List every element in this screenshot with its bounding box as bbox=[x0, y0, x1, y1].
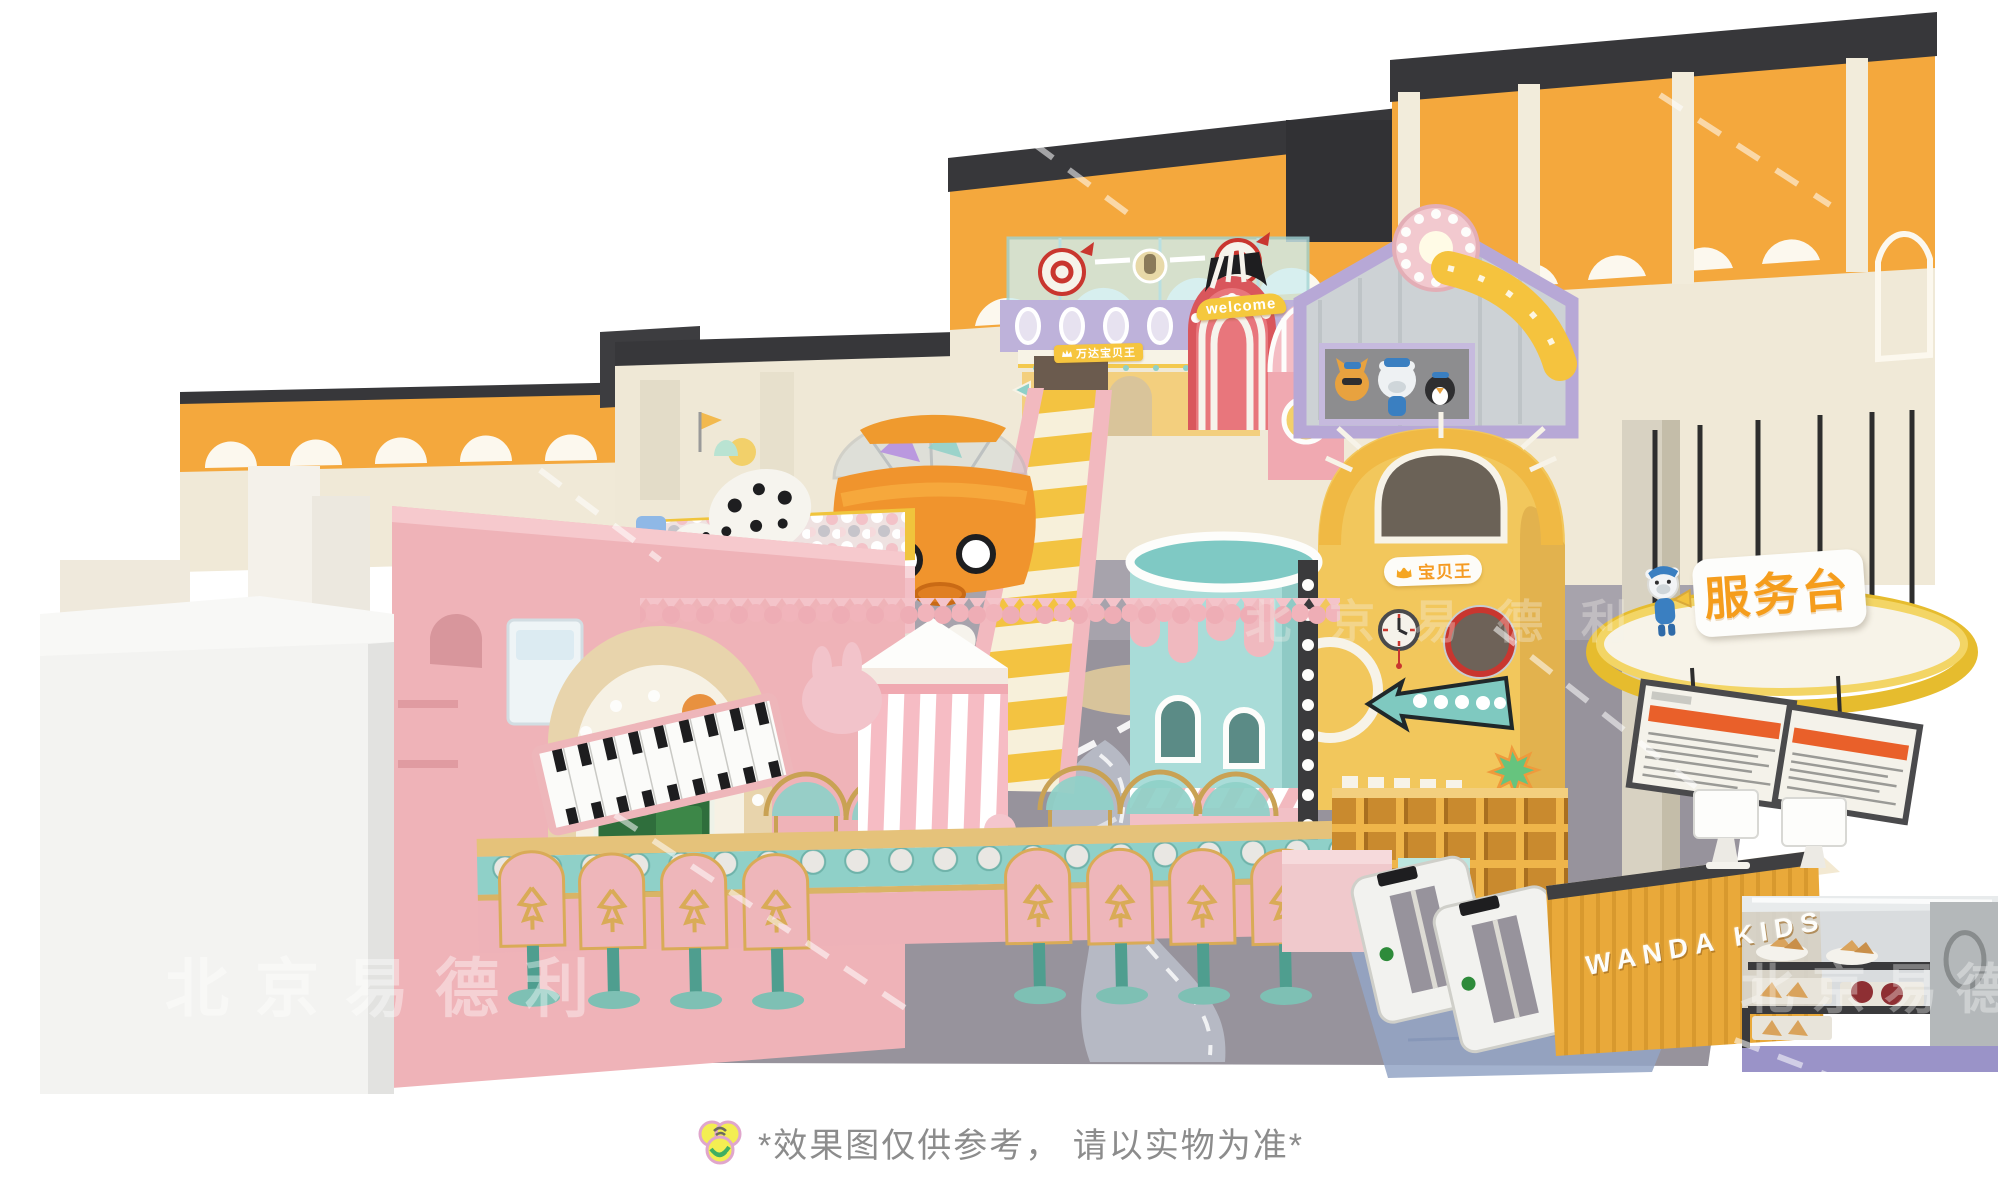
company-logo-icon bbox=[696, 1119, 744, 1167]
brand-pill-sign: 宝贝王 bbox=[1384, 554, 1483, 586]
arch-window bbox=[1378, 452, 1504, 540]
menu-board-1 bbox=[1629, 682, 1794, 806]
caption-text: *效果图仅供参考， 请以实物为准* bbox=[758, 1118, 1304, 1167]
cat-character bbox=[1335, 358, 1369, 401]
teal-tower bbox=[1130, 536, 1318, 870]
footer-caption: *效果图仅供参考， 请以实物为准* bbox=[0, 1118, 2000, 1167]
kiosk-banner-sign: 万达宝贝王 bbox=[1054, 343, 1143, 363]
polar-bear-mascot-icon bbox=[1638, 560, 1695, 641]
starburst bbox=[1490, 748, 1538, 795]
garland-bunting bbox=[640, 598, 1340, 624]
service-desk-sign: 服务台 bbox=[1638, 548, 1868, 642]
crown-icon bbox=[1394, 564, 1415, 580]
playground-render: 北京易德利 北京易德利 北京易德利 万达宝贝王 welcome 宝贝王 服务台 … bbox=[0, 0, 2000, 1200]
wall-window bbox=[430, 614, 482, 668]
red-porthole bbox=[1443, 605, 1517, 679]
crown-icon bbox=[1061, 349, 1073, 359]
